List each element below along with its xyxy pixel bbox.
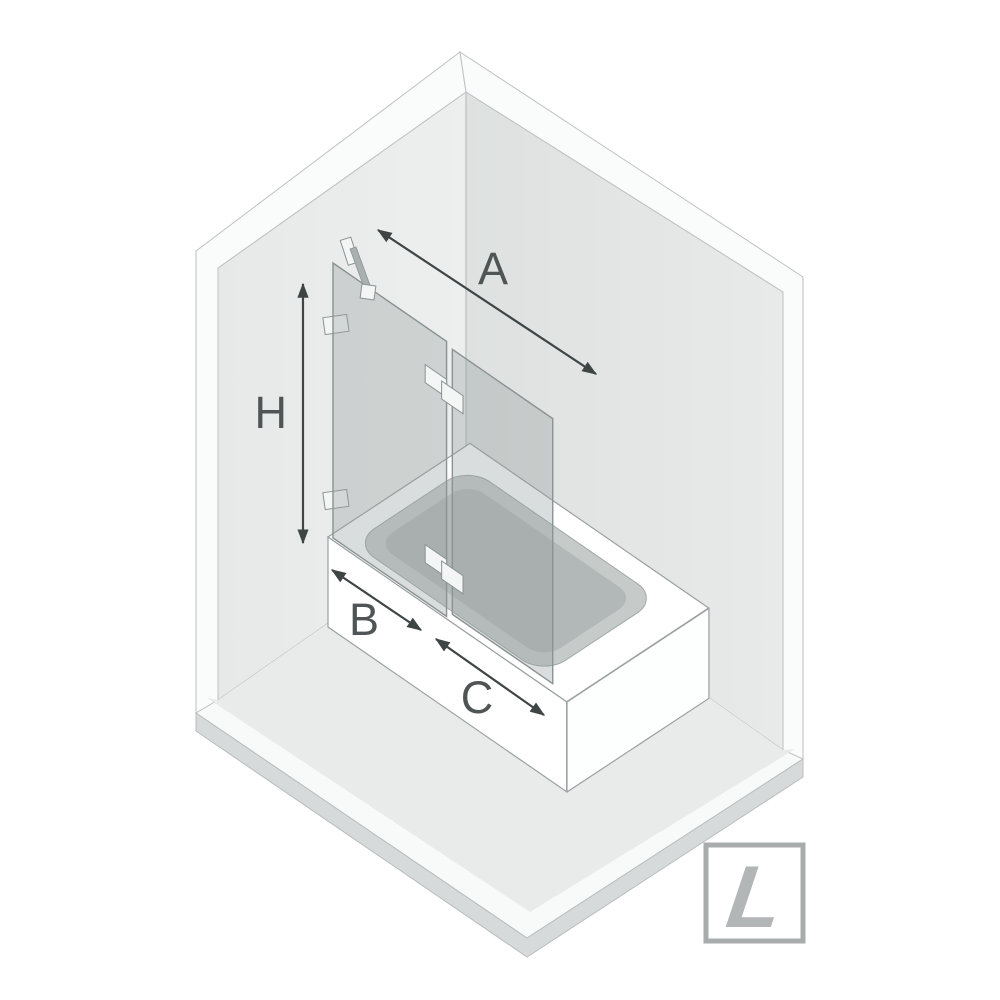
dim-label-a: A — [478, 243, 508, 294]
orientation-badge: L — [706, 845, 803, 946]
support-arm-glass-plate — [360, 284, 376, 300]
diagram-canvas: A H B C L — [0, 0, 1000, 1000]
dim-label-b: B — [349, 594, 379, 645]
dim-label-c: C — [461, 672, 494, 723]
dim-label-h: H — [255, 387, 288, 438]
bath-screen-isometric-diagram: A H B C L — [0, 0, 1000, 1000]
